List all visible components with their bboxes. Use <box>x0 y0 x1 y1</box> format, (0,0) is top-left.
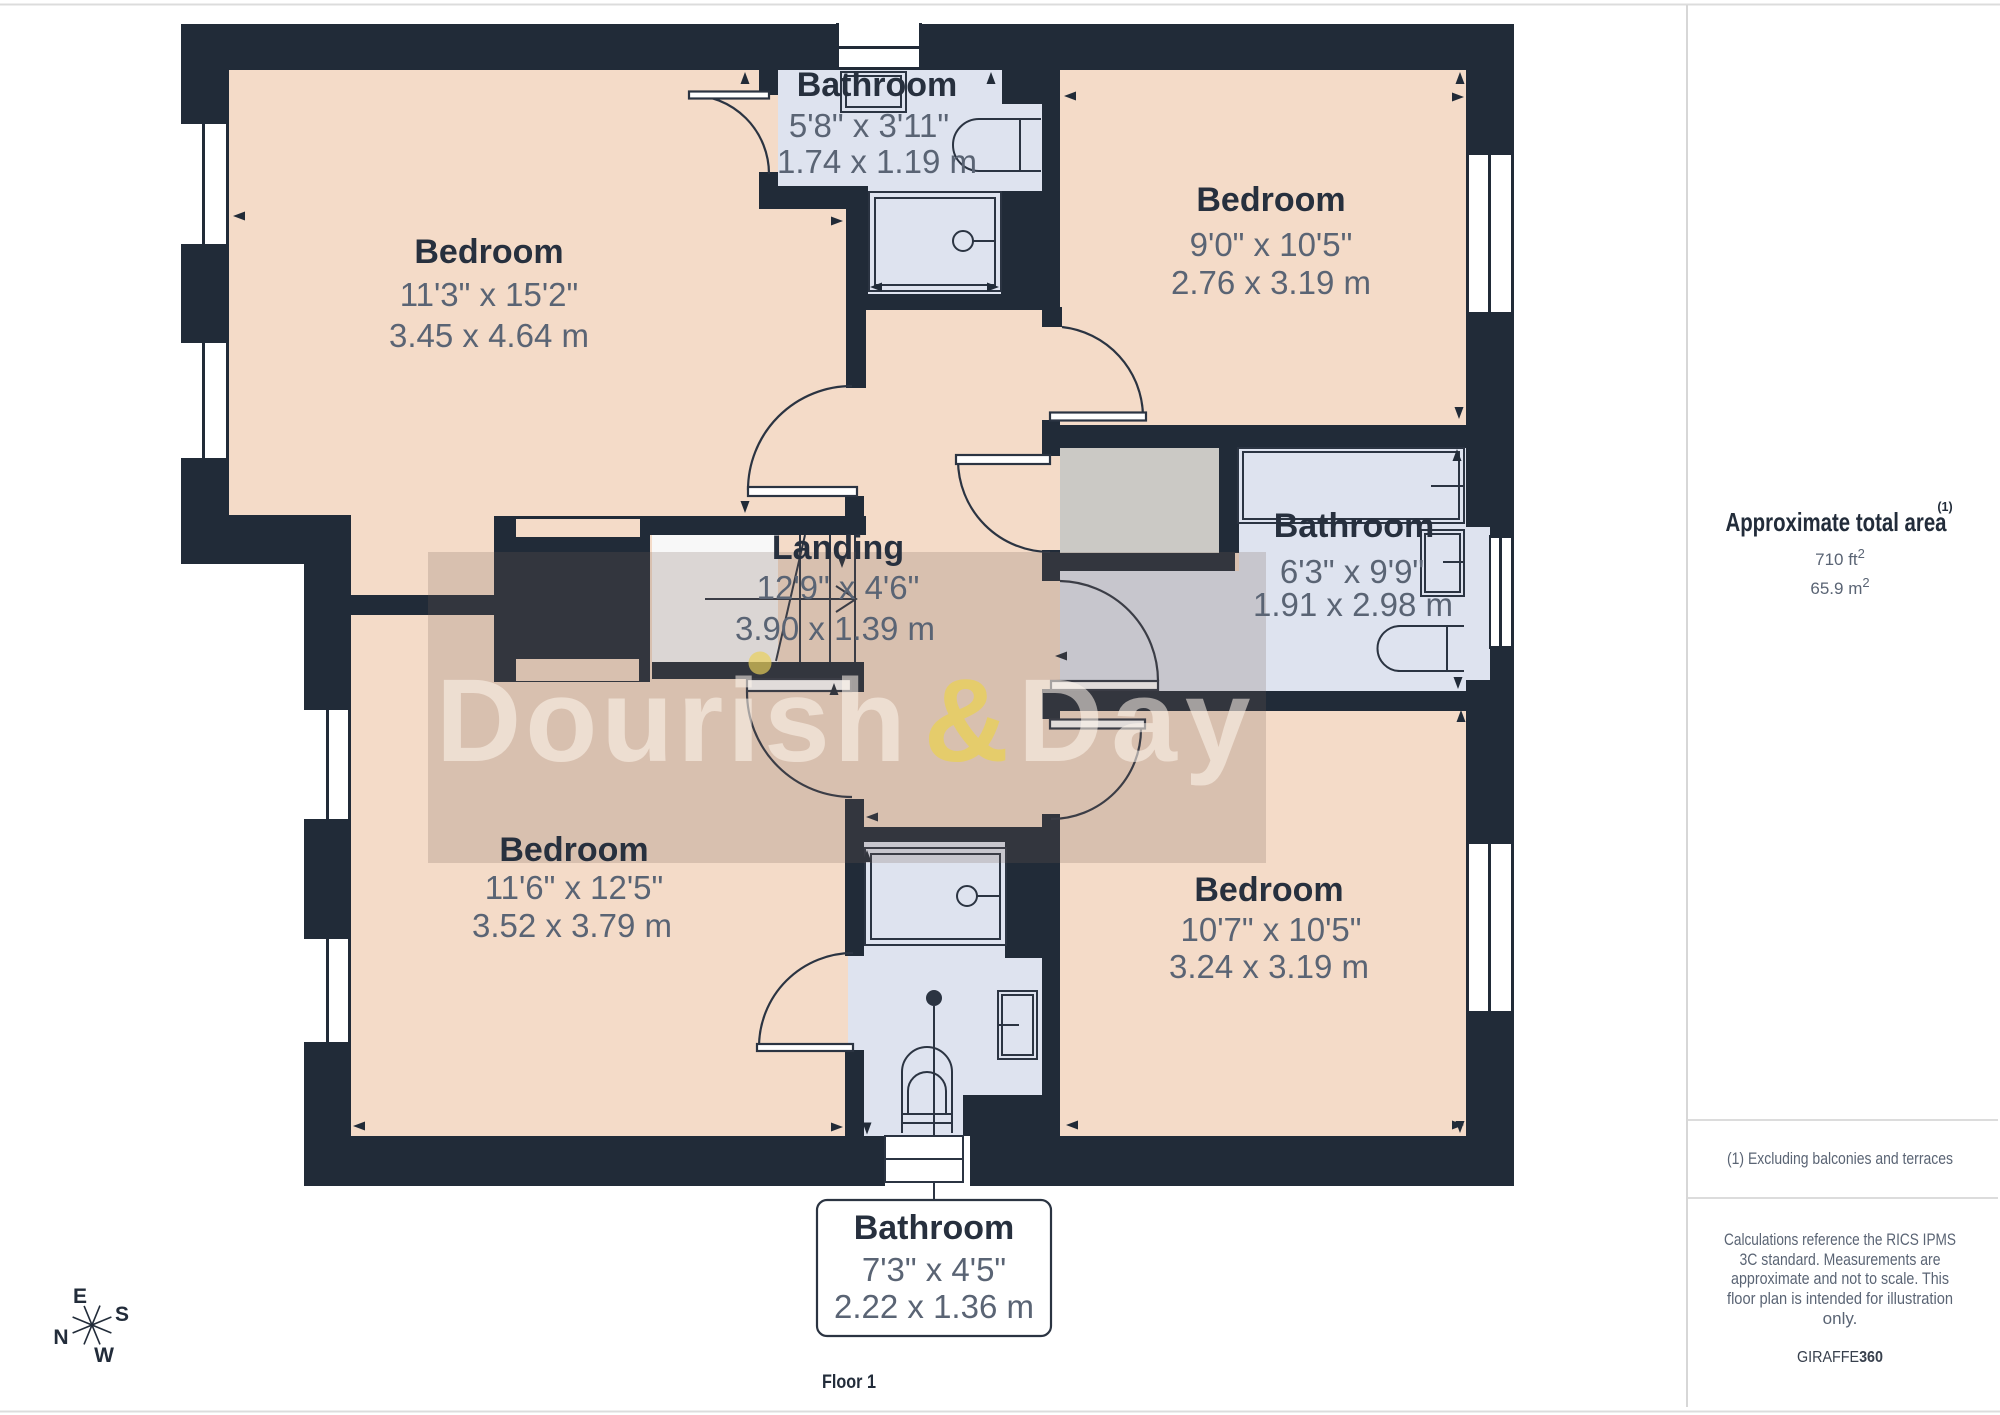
svg-text:W: W <box>94 1344 114 1367</box>
svg-text:approximate and not to scale.: approximate and not to scale. This <box>1731 1269 1949 1288</box>
svg-text:N: N <box>53 1326 68 1349</box>
svg-text:(1) Excluding balconies and te: (1) Excluding balconies and terraces <box>1727 1149 1953 1168</box>
svg-text:only.: only. <box>1823 1309 1858 1328</box>
svg-text:7'3" x 4'5": 7'3" x 4'5" <box>862 1251 1006 1288</box>
svg-text:Bedroom: Bedroom <box>1196 181 1345 219</box>
svg-text:Bathroom: Bathroom <box>1274 507 1435 545</box>
svg-text:S: S <box>115 1303 129 1326</box>
svg-text:2.76 x 3.19 m: 2.76 x 3.19 m <box>1171 264 1371 301</box>
svg-text:Floor 1: Floor 1 <box>822 1372 876 1393</box>
svg-text:Dourish&Day: Dourish&Day <box>436 655 1258 787</box>
svg-text:Landing: Landing <box>772 529 904 567</box>
svg-text:Bedroom: Bedroom <box>1194 871 1343 909</box>
svg-text:5'8" x 3'11": 5'8" x 3'11" <box>789 107 949 144</box>
svg-text:E: E <box>73 1285 87 1308</box>
svg-text:11'6" x 12'5": 11'6" x 12'5" <box>485 869 664 906</box>
svg-text:floor plan is intended for ill: floor plan is intended for illustration <box>1727 1289 1953 1308</box>
svg-text:Bathroom: Bathroom <box>797 66 958 104</box>
svg-text:3.45 x 4.64 m: 3.45 x 4.64 m <box>389 317 589 354</box>
svg-text:Bedroom: Bedroom <box>499 831 648 869</box>
svg-text:10'7" x 10'5": 10'7" x 10'5" <box>1181 911 1362 948</box>
svg-text:1.91 x 2.98 m: 1.91 x 2.98 m <box>1253 586 1453 623</box>
svg-text:6'3" x 9'9": 6'3" x 9'9" <box>1280 553 1424 590</box>
svg-text:GIRAFFE360: GIRAFFE360 <box>1797 1349 1883 1366</box>
svg-text:Bedroom: Bedroom <box>414 233 563 271</box>
svg-text:3C standard. Measurements are: 3C standard. Measurements are <box>1740 1250 1941 1269</box>
svg-text:65.9 m2: 65.9 m2 <box>1810 575 1869 598</box>
svg-text:3.24 x 3.19 m: 3.24 x 3.19 m <box>1169 948 1369 985</box>
svg-text:2.22 x 1.36 m: 2.22 x 1.36 m <box>834 1288 1034 1325</box>
svg-text:11'3" x 15'2": 11'3" x 15'2" <box>400 276 579 313</box>
svg-text:Calculations reference the RIC: Calculations reference the RICS IPMS <box>1724 1230 1956 1249</box>
svg-text:Approximate total area: Approximate total area <box>1726 507 1947 537</box>
svg-text:Bathroom: Bathroom <box>854 1209 1015 1247</box>
svg-text:(1): (1) <box>1937 500 1952 514</box>
svg-text:3.52 x 3.79 m: 3.52 x 3.79 m <box>472 907 672 944</box>
svg-text:3.90 x 1.39 m: 3.90 x 1.39 m <box>735 610 935 647</box>
svg-text:710 ft2: 710 ft2 <box>1815 546 1865 569</box>
svg-text:1.74 x 1.19 m: 1.74 x 1.19 m <box>777 143 977 180</box>
svg-text:9'0" x 10'5": 9'0" x 10'5" <box>1190 226 1353 263</box>
svg-text:12'9" x 4'6": 12'9" x 4'6" <box>757 569 920 606</box>
